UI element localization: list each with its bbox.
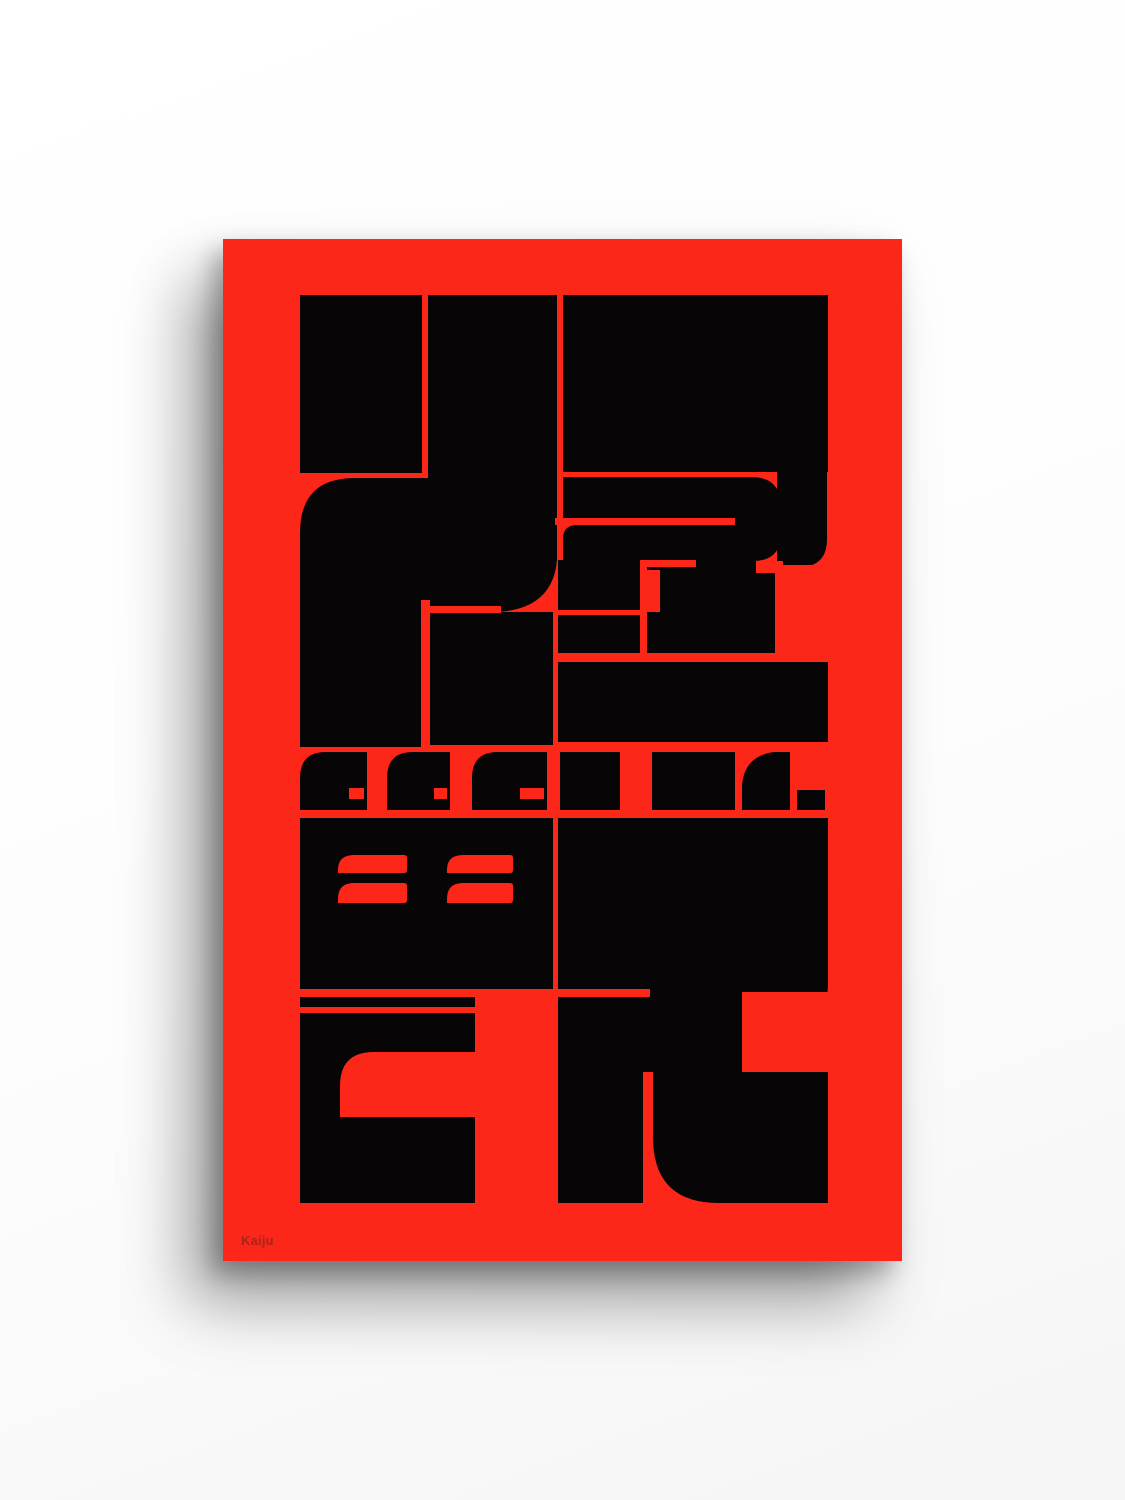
poster-caption: Kaiju: [241, 1233, 274, 1248]
poster: Kaiju: [223, 239, 902, 1261]
page-background: { "page": { "background_color": "#fdfdfd…: [0, 0, 1125, 1500]
poster-artwork: [223, 239, 902, 1261]
